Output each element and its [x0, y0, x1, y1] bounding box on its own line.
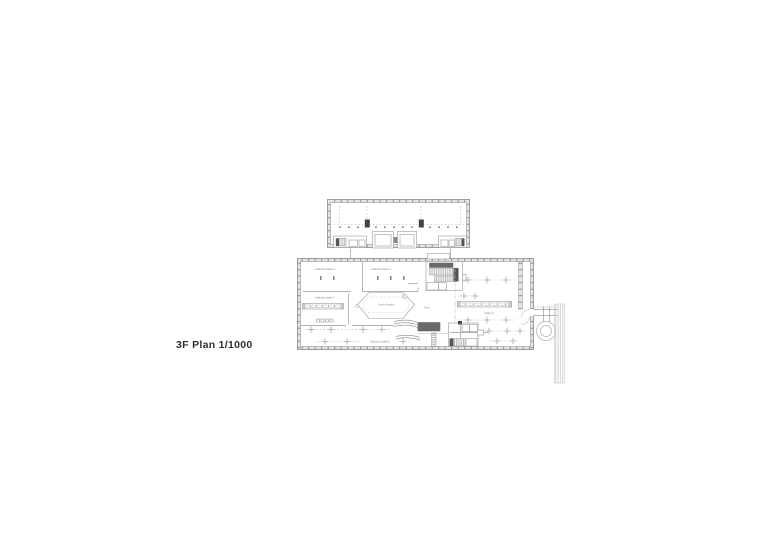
plan-sheet: 3F Plan 1/1000	[0, 0, 768, 542]
plinth	[326, 319, 329, 322]
stair-hatch	[432, 333, 437, 347]
escalator	[418, 323, 440, 332]
annex-stair-core-left	[334, 236, 367, 248]
plinth	[317, 319, 320, 322]
room-label-gallery3: Collection Gallery 3	[315, 268, 336, 271]
main-wall-bottom	[298, 347, 534, 350]
annex-wall-right	[467, 200, 470, 248]
annex-shaft-block	[419, 220, 424, 228]
stair-hatch	[435, 276, 455, 282]
main-building: Collection Gallery 3 Collection Gallery …	[298, 254, 536, 350]
plinth	[330, 319, 333, 322]
annex-shaft-block	[365, 220, 370, 228]
annex-building	[328, 200, 470, 260]
floor-plan-drawing: Collection Gallery 3 Collection Gallery …	[0, 0, 768, 542]
garden-column	[402, 294, 407, 299]
main-wall-top	[298, 259, 534, 262]
main-wall-left	[298, 259, 301, 350]
annex-wall-left	[328, 200, 331, 248]
sunken-garden: Sunken Garden	[358, 293, 415, 319]
east-inner-wall	[519, 262, 523, 310]
room-label-gallery2: Collection Gallery 2	[315, 296, 336, 299]
room-label-garden: Sunken Garden	[378, 303, 395, 306]
exterior-wall-band	[555, 304, 565, 383]
stair-hatch	[430, 269, 455, 276]
circular-stair	[537, 322, 556, 341]
plinth	[321, 319, 324, 322]
main-wall-right	[531, 259, 534, 350]
annex-stair-core-right	[439, 236, 467, 248]
room-label-gallery4: Gallery 4	[484, 312, 494, 315]
core-protrusion	[428, 254, 450, 260]
east-exterior	[534, 304, 565, 383]
room-label-foyer: Foyer	[424, 306, 430, 309]
wall-opening	[530, 309, 536, 316]
room-label-gallery1: Collection Gallery 1	[371, 268, 392, 271]
elevator-bank	[430, 263, 454, 268]
room-label-gallery5: Collection Gallery 5	[370, 341, 391, 344]
annex-wall-top	[328, 200, 470, 203]
